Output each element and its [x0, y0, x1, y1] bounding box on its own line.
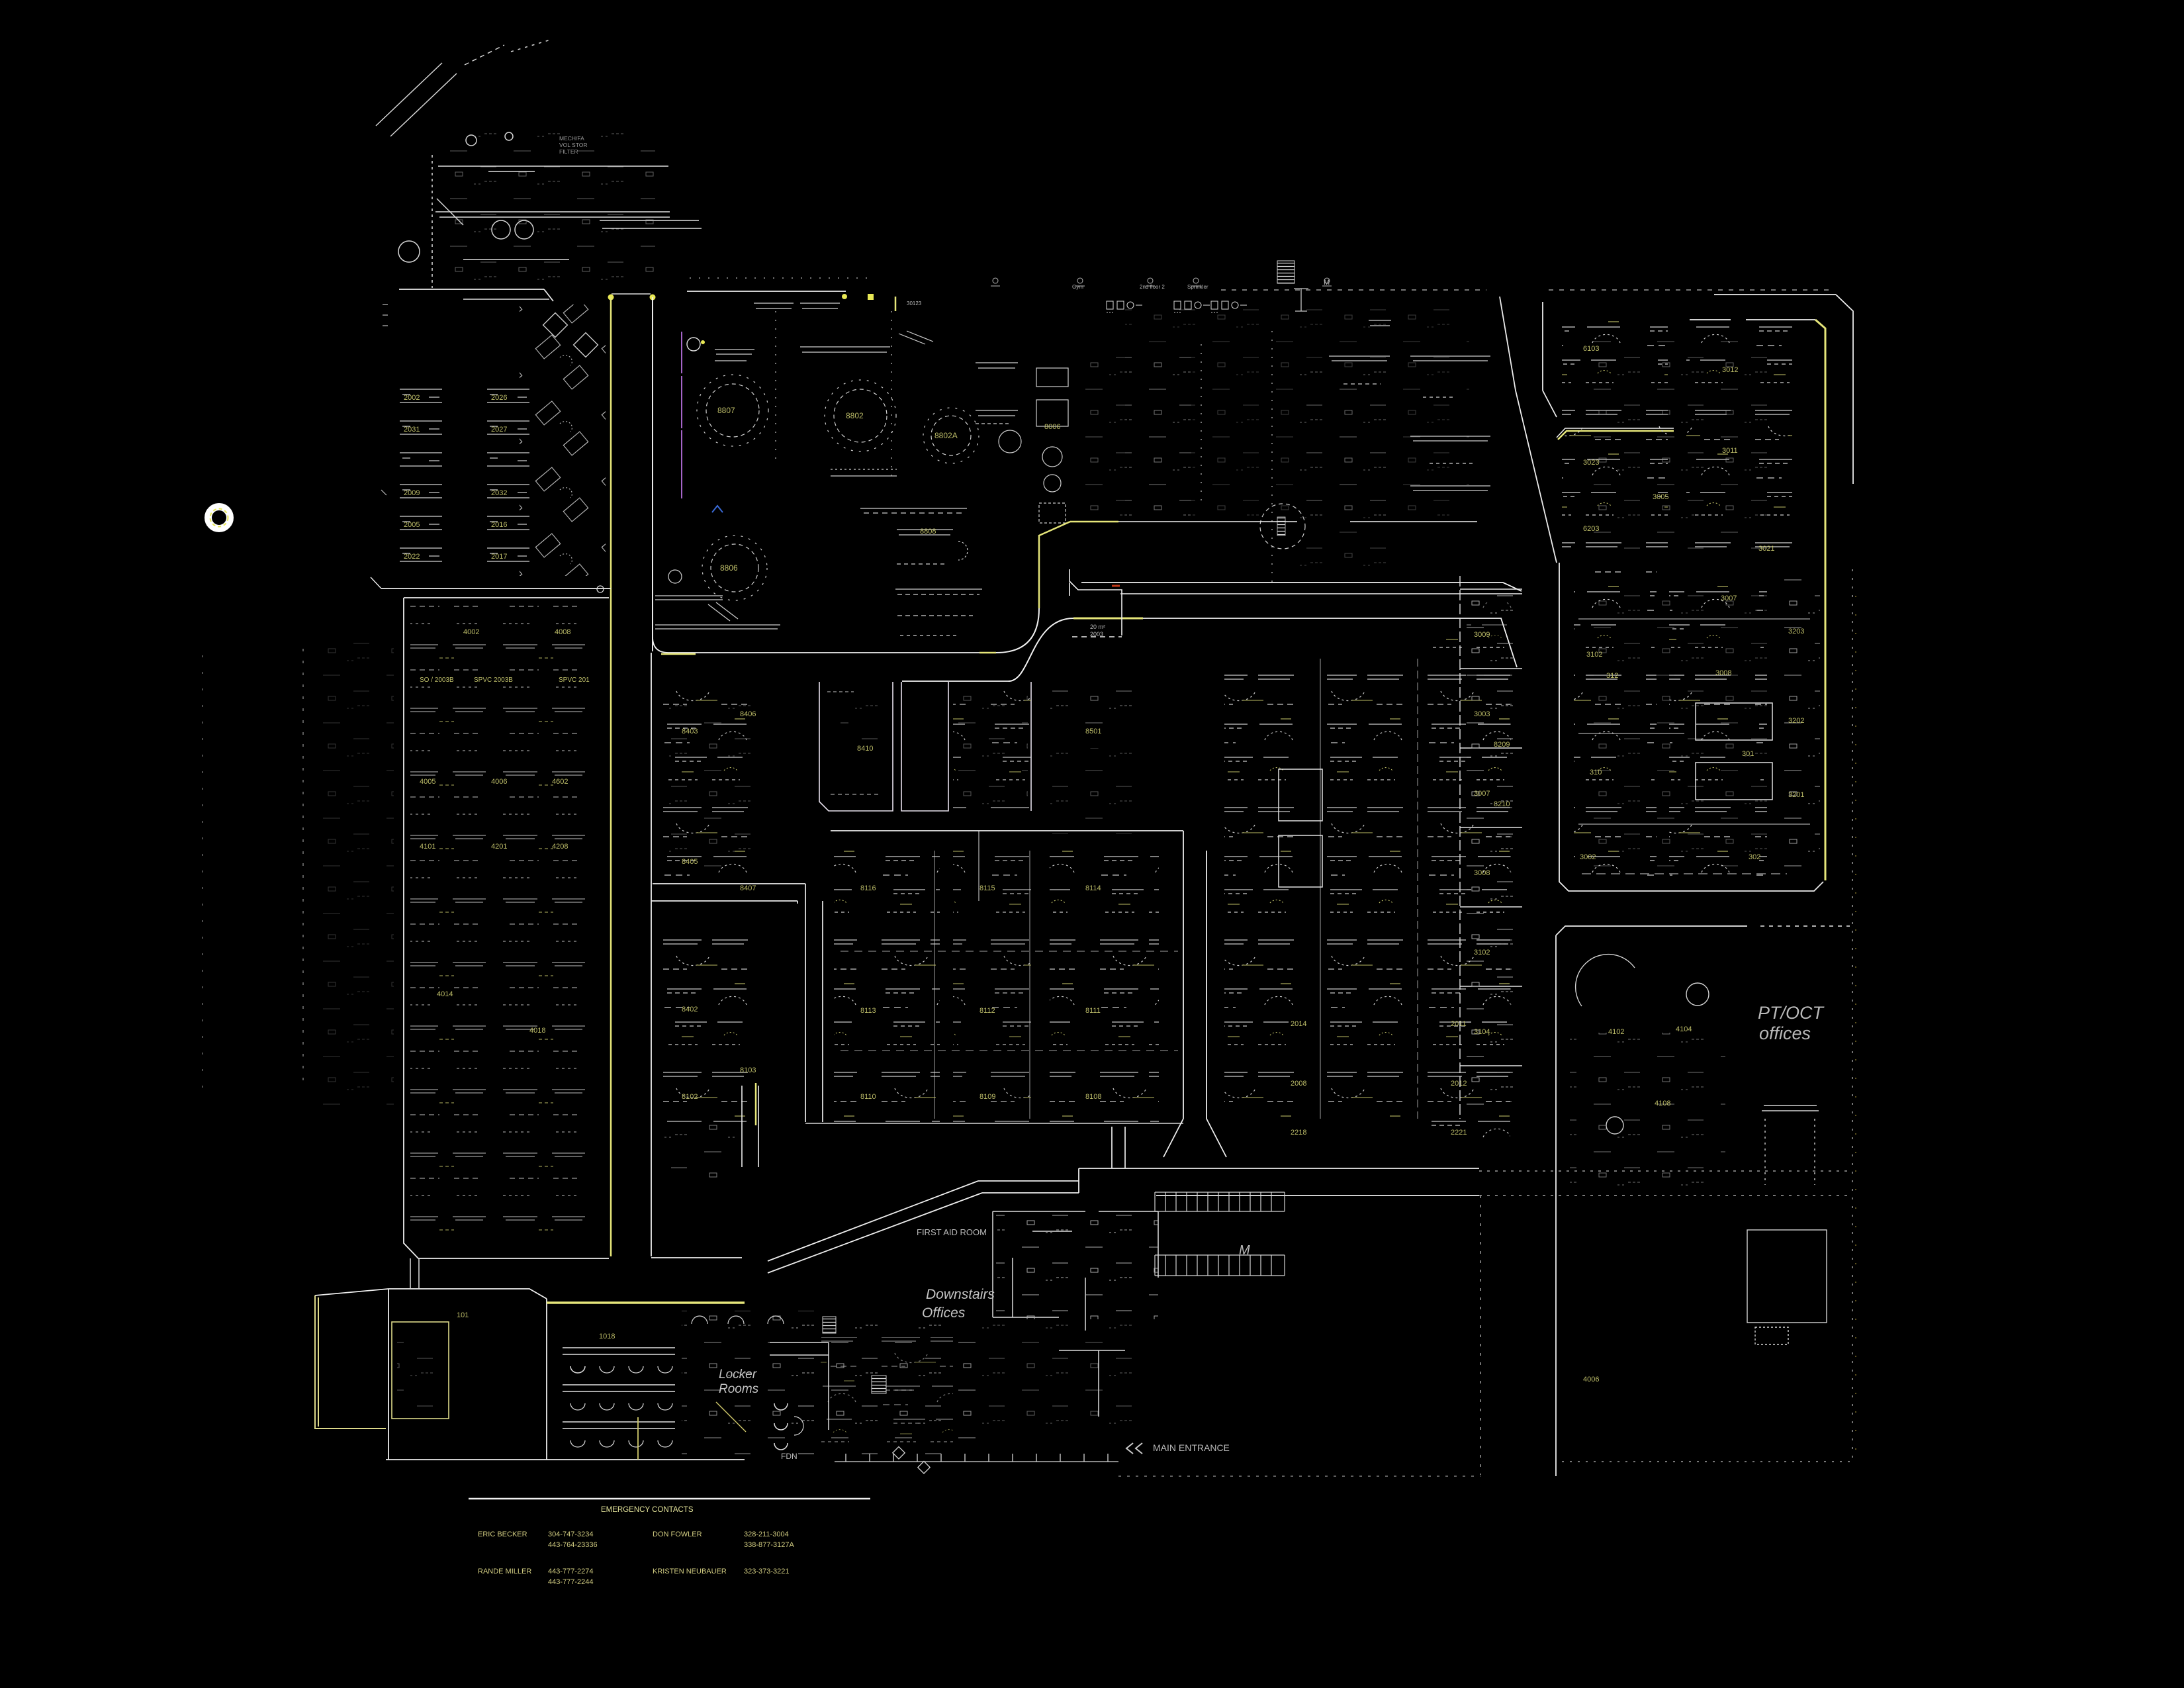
svg-text:3201: 3201 — [1788, 791, 1804, 799]
svg-text:offices: offices — [1759, 1023, 1811, 1043]
svg-text:FIRST AID ROOM: FIRST AID ROOM — [917, 1227, 987, 1237]
svg-text:2017: 2017 — [491, 553, 507, 561]
svg-text:323-373-3221: 323-373-3221 — [744, 1568, 790, 1575]
svg-text:M: M — [1324, 279, 1330, 287]
svg-text:8808: 8808 — [920, 528, 936, 536]
svg-text:3203: 3203 — [1788, 628, 1804, 635]
svg-text:3005: 3005 — [1653, 493, 1668, 501]
svg-text:8403: 8403 — [682, 727, 698, 735]
svg-text:Gym: Gym — [1072, 284, 1083, 290]
svg-text:2016: 2016 — [491, 521, 507, 529]
svg-text:443-777-2244: 443-777-2244 — [548, 1578, 594, 1586]
svg-text:2003: 2003 — [1090, 631, 1103, 637]
svg-text:3007: 3007 — [1474, 790, 1490, 798]
svg-text:Downstairs: Downstairs — [926, 1287, 995, 1302]
svg-text:3007: 3007 — [1721, 594, 1737, 602]
svg-text:8006: 8006 — [1044, 423, 1060, 431]
svg-text:4104: 4104 — [1676, 1025, 1692, 1033]
svg-text:8103: 8103 — [740, 1066, 756, 1074]
svg-text:VOL STOR: VOL STOR — [559, 142, 588, 148]
svg-text:M: M — [1239, 1243, 1250, 1258]
svg-text:4201: 4201 — [491, 843, 507, 851]
svg-text:2002: 2002 — [404, 394, 420, 402]
svg-text:2027: 2027 — [491, 426, 507, 434]
svg-text:3008: 3008 — [1474, 869, 1490, 877]
svg-text:4018: 4018 — [529, 1027, 545, 1035]
svg-text:3012: 3012 — [1722, 366, 1738, 374]
svg-text:8116: 8116 — [860, 884, 876, 892]
svg-text:EMERGENCY CONTACTS: EMERGENCY CONTACTS — [601, 1506, 694, 1514]
svg-text:8405: 8405 — [682, 858, 698, 866]
svg-text:3009: 3009 — [1474, 631, 1490, 639]
svg-text:PT/OCT: PT/OCT — [1758, 1003, 1825, 1023]
svg-text:8110: 8110 — [860, 1093, 876, 1101]
svg-text:3002: 3002 — [1580, 853, 1596, 861]
svg-text:1018: 1018 — [599, 1333, 615, 1340]
svg-text:DON FOWLER: DON FOWLER — [653, 1530, 702, 1538]
svg-text:RANDE MILLER: RANDE MILLER — [478, 1568, 531, 1575]
svg-text:3021: 3021 — [1758, 545, 1774, 553]
svg-text:8108: 8108 — [1085, 1093, 1101, 1101]
svg-text:4008: 4008 — [555, 628, 570, 636]
svg-text:8115: 8115 — [979, 884, 995, 892]
svg-text:Locker: Locker — [719, 1368, 757, 1382]
svg-text:MAIN ENTRANCE: MAIN ENTRANCE — [1153, 1442, 1230, 1453]
svg-text:8402: 8402 — [682, 1006, 698, 1013]
svg-text:2005: 2005 — [404, 521, 420, 529]
svg-text:4005: 4005 — [420, 778, 435, 786]
svg-text:2026: 2026 — [491, 394, 507, 402]
svg-text:Offices: Offices — [922, 1305, 966, 1321]
svg-text:4014: 4014 — [437, 990, 453, 998]
svg-text:443-777-2274: 443-777-2274 — [548, 1568, 594, 1575]
svg-text:4108: 4108 — [1655, 1100, 1670, 1107]
svg-text:8113: 8113 — [860, 1007, 876, 1015]
svg-text:338-877-3127A: 338-877-3127A — [744, 1541, 795, 1549]
svg-text:8102: 8102 — [682, 1093, 698, 1101]
svg-text:4101: 4101 — [420, 843, 435, 851]
svg-text:301: 301 — [1742, 750, 1754, 758]
svg-text:SO / 2003B: SO / 2003B — [420, 677, 454, 684]
svg-text:SPVC 201: SPVC 201 — [559, 677, 590, 684]
svg-text:30123: 30123 — [907, 301, 922, 306]
svg-text:2032: 2032 — [491, 489, 507, 497]
svg-text:2014: 2014 — [1291, 1020, 1306, 1028]
svg-text:2009: 2009 — [404, 489, 420, 497]
svg-text:2218: 2218 — [1291, 1129, 1306, 1137]
svg-text:2221: 2221 — [1451, 1129, 1467, 1137]
svg-text:4602: 4602 — [552, 778, 568, 786]
svg-text:443-764-23336: 443-764-23336 — [548, 1541, 598, 1549]
svg-text:3202: 3202 — [1788, 717, 1804, 725]
svg-text:8112: 8112 — [979, 1007, 995, 1015]
svg-text:8109: 8109 — [979, 1093, 995, 1101]
svg-text:3023: 3023 — [1583, 459, 1599, 467]
svg-text:3011: 3011 — [1722, 447, 1738, 455]
svg-text:304-747-3234: 304-747-3234 — [548, 1530, 594, 1538]
svg-text:3008: 3008 — [1715, 669, 1731, 677]
svg-text:4102: 4102 — [1608, 1028, 1624, 1036]
svg-text:6203: 6203 — [1583, 525, 1599, 533]
svg-text:8406: 8406 — [740, 710, 756, 718]
svg-text:8501: 8501 — [1085, 727, 1101, 735]
svg-text:4002: 4002 — [463, 628, 479, 636]
svg-text:KRISTEN NEUBAUER: KRISTEN NEUBAUER — [653, 1568, 727, 1575]
svg-text:20 m²: 20 m² — [1090, 624, 1105, 630]
svg-text:2022: 2022 — [404, 553, 420, 561]
svg-text:3102: 3102 — [1474, 949, 1490, 957]
svg-text:ERIC BECKER: ERIC BECKER — [478, 1530, 527, 1538]
svg-text:MECH/FA: MECH/FA — [559, 135, 584, 142]
svg-text:3003: 3003 — [1474, 710, 1490, 718]
svg-text:3104: 3104 — [1474, 1028, 1490, 1036]
svg-text:8114: 8114 — [1085, 884, 1101, 892]
svg-text:4208: 4208 — [552, 843, 568, 851]
svg-text:6103: 6103 — [1583, 345, 1599, 353]
svg-text:3102: 3102 — [1586, 651, 1602, 659]
svg-text:302: 302 — [1749, 853, 1760, 861]
svg-text:328-211-3004: 328-211-3004 — [744, 1530, 789, 1538]
svg-text:FILTER: FILTER — [559, 148, 578, 155]
svg-text:8807: 8807 — [717, 406, 735, 415]
svg-text:101: 101 — [457, 1311, 469, 1319]
svg-text:8802: 8802 — [846, 411, 864, 420]
svg-text:2008: 2008 — [1291, 1080, 1306, 1088]
svg-text:312: 312 — [1606, 672, 1618, 680]
svg-text:8802A: 8802A — [934, 431, 958, 440]
svg-text:SPVC 2003B: SPVC 2003B — [474, 677, 513, 684]
svg-text:Sprinkler: Sprinkler — [1187, 284, 1208, 290]
svg-text:2nd floor 2: 2nd floor 2 — [1140, 284, 1165, 290]
svg-text:310: 310 — [1590, 769, 1602, 776]
svg-text:8806: 8806 — [720, 563, 738, 573]
svg-text:8410: 8410 — [857, 745, 873, 753]
svg-text:8111: 8111 — [1085, 1007, 1101, 1015]
svg-text:4006: 4006 — [1583, 1376, 1599, 1383]
svg-text:2031: 2031 — [404, 426, 420, 434]
svg-text:Rooms: Rooms — [719, 1382, 759, 1396]
svg-text:4006: 4006 — [491, 778, 507, 786]
svg-text:8407: 8407 — [740, 884, 756, 892]
